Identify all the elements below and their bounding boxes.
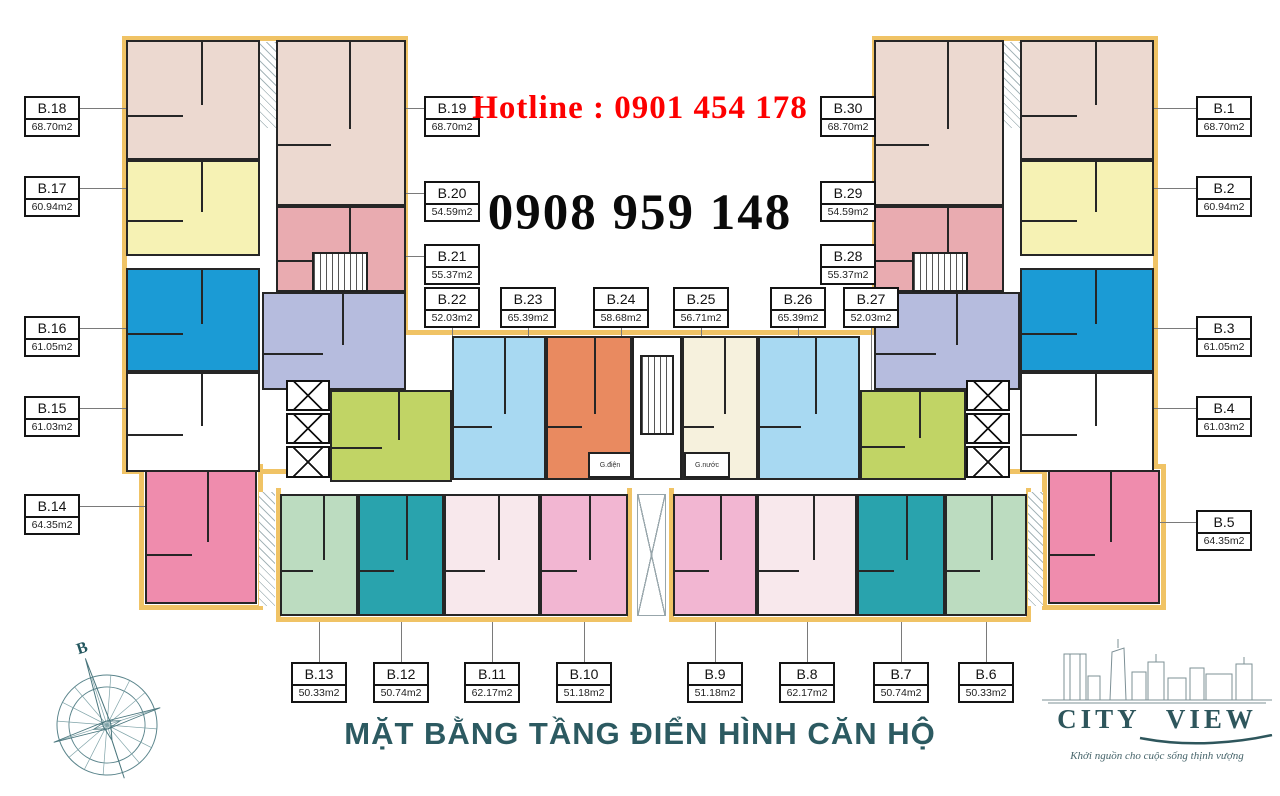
unit-name-b-28: B.28 [820, 244, 876, 268]
unit-area-b-24: 58.68m2 [593, 311, 649, 328]
stairwell-right [912, 252, 968, 292]
unit-name-b-12: B.12 [373, 662, 429, 686]
unit-name-b-13: B.13 [291, 662, 347, 686]
unit-area-b-18: 68.70m2 [24, 120, 80, 137]
unit-area-b-6: 50.33m2 [958, 686, 1014, 703]
gap-hatch-top-right [1004, 42, 1020, 128]
elevator-shaft-icon [286, 380, 330, 411]
unit-label-b-11: B.1162.17m2 [464, 662, 520, 703]
unit-area-b-2: 60.94m2 [1196, 200, 1252, 217]
unit-label-b-13: B.1350.33m2 [291, 662, 347, 703]
unit-area-b-5: 64.35m2 [1196, 534, 1252, 551]
unit-name-b-3: B.3 [1196, 316, 1252, 340]
stairwell-left [312, 252, 368, 292]
elevator-shaft-icon [966, 380, 1010, 411]
unit-area-b-16: 61.05m2 [24, 340, 80, 357]
unit-area-b-13: 50.33m2 [291, 686, 347, 703]
unit-name-b-15: B.15 [24, 396, 80, 420]
elevator-shaft-icon [966, 446, 1010, 478]
unit-area-b-21: 55.37m2 [424, 268, 480, 285]
unit-area-b-9: 51.18m2 [687, 686, 743, 703]
electric-room: G.điện [588, 452, 632, 478]
brand-swoosh-icon [1040, 734, 1274, 746]
unit-area-b-8: 62.17m2 [779, 686, 835, 703]
unit-name-b-27: B.27 [843, 287, 899, 311]
unit-area-b-12: 50.74m2 [373, 686, 429, 703]
unit-label-b-15: B.1561.03m2 [24, 396, 80, 437]
electric-room-label: G.điện [600, 462, 621, 469]
center-shaft-gap [637, 494, 666, 616]
unit-area-b-25: 56.71m2 [673, 311, 729, 328]
unit-name-b-1: B.1 [1196, 96, 1252, 120]
unit-name-b-10: B.10 [556, 662, 612, 686]
unit-name-b-7: B.7 [873, 662, 929, 686]
unit-name-b-2: B.2 [1196, 176, 1252, 200]
unit-label-b-21: B.2155.37m2 [424, 244, 480, 285]
hotline-label: Hotline : [472, 90, 605, 126]
unit-label-b-4: B.461.03m2 [1196, 396, 1252, 437]
unit-label-b-10: B.1051.18m2 [556, 662, 612, 703]
water-room-label: G.nước [695, 462, 719, 469]
unit-name-b-14: B.14 [24, 494, 80, 518]
unit-name-b-18: B.18 [24, 96, 80, 120]
unit-label-b-7: B.750.74m2 [873, 662, 929, 703]
unit-area-b-3: 61.05m2 [1196, 340, 1252, 357]
unit-label-b-14: B.1464.35m2 [24, 494, 80, 535]
unit-name-b-25: B.25 [673, 287, 729, 311]
elevator-shaft-icon [966, 413, 1010, 444]
unit-area-b-22: 52.03m2 [424, 311, 480, 328]
unit-label-b-24: B.2458.68m2 [593, 287, 649, 328]
unit-name-b-21: B.21 [424, 244, 480, 268]
unit-label-b-26: B.2665.39m2 [770, 287, 826, 328]
gap-hatch-bottom-right [1028, 492, 1043, 606]
page-title: MẶT BẰNG TẦNG ĐIỂN HÌNH CĂN HỘ [320, 716, 960, 752]
unit-label-b-23: B.2365.39m2 [500, 287, 556, 328]
unit-area-b-11: 62.17m2 [464, 686, 520, 703]
stairwell-center [640, 355, 674, 435]
unit-label-b-27: B.2752.03m2 [843, 287, 899, 328]
unit-label-b-12: B.1250.74m2 [373, 662, 429, 703]
unit-label-b-25: B.2556.71m2 [673, 287, 729, 328]
unit-name-b-8: B.8 [779, 662, 835, 686]
unit-name-b-24: B.24 [593, 287, 649, 311]
unit-area-b-10: 51.18m2 [556, 686, 612, 703]
unit-area-b-15: 61.03m2 [24, 420, 80, 437]
unit-label-b-18: B.1868.70m2 [24, 96, 80, 137]
unit-name-b-16: B.16 [24, 316, 80, 340]
unit-label-b-6: B.650.33m2 [958, 662, 1014, 703]
unit-label-b-3: B.361.05m2 [1196, 316, 1252, 357]
compass-rose-icon: B [40, 635, 175, 795]
unit-label-b-1: B.168.70m2 [1196, 96, 1252, 137]
unit-area-b-26: 65.39m2 [770, 311, 826, 328]
unit-label-b-8: B.862.17m2 [779, 662, 835, 703]
brand-logo: CITY VIEW Khởi nguồn cho cuộc sống thịnh… [1040, 638, 1274, 762]
unit-area-b-28: 55.37m2 [820, 268, 876, 285]
unit-area-b-14: 64.35m2 [24, 518, 80, 535]
unit-name-b-6: B.6 [958, 662, 1014, 686]
elevator-shaft-icon [286, 446, 330, 478]
brand-tagline: Khởi nguồn cho cuộc sống thịnh vượng [1040, 750, 1274, 762]
unit-label-b-5: B.564.35m2 [1196, 510, 1252, 551]
compass-north-label: B [74, 639, 90, 659]
unit-label-b-2: B.260.94m2 [1196, 176, 1252, 217]
water-room: G.nước [684, 452, 730, 478]
elevator-shaft-icon [286, 413, 330, 444]
unit-label-b-28: B.2855.37m2 [820, 244, 876, 285]
unit-area-b-27: 52.03m2 [843, 311, 899, 328]
unit-area-b-7: 50.74m2 [873, 686, 929, 703]
unit-label-b-22: B.2252.03m2 [424, 287, 480, 328]
unit-name-b-9: B.9 [687, 662, 743, 686]
phone-number-large: 0908 959 148 [410, 184, 870, 242]
unit-name-b-22: B.22 [424, 287, 480, 311]
unit-name-b-26: B.26 [770, 287, 826, 311]
brand-name: CITY VIEW [1040, 704, 1274, 734]
gap-hatch-top-left [260, 42, 276, 128]
unit-label-b-9: B.951.18m2 [687, 662, 743, 703]
hotline-phone: 0901 454 178 [614, 90, 808, 126]
gap-hatch-bottom-left [259, 492, 275, 606]
unit-label-b-17: B.1760.94m2 [24, 176, 80, 217]
unit-area-b-17: 60.94m2 [24, 200, 80, 217]
unit-name-b-5: B.5 [1196, 510, 1252, 534]
unit-name-b-23: B.23 [500, 287, 556, 311]
unit-name-b-4: B.4 [1196, 396, 1252, 420]
city-skyline-icon [1040, 638, 1274, 704]
floor-plan-canvas: B.168.70m2B.260.94m2B.361.05m2B.461.03m2… [0, 0, 1280, 796]
unit-name-b-17: B.17 [24, 176, 80, 200]
unit-name-b-11: B.11 [464, 662, 520, 686]
unit-area-b-23: 65.39m2 [500, 311, 556, 328]
unit-area-b-4: 61.03m2 [1196, 420, 1252, 437]
hotline-text: Hotline : 0901 454 178 [400, 90, 880, 127]
unit-area-b-1: 68.70m2 [1196, 120, 1252, 137]
unit-label-b-16: B.1661.05m2 [24, 316, 80, 357]
